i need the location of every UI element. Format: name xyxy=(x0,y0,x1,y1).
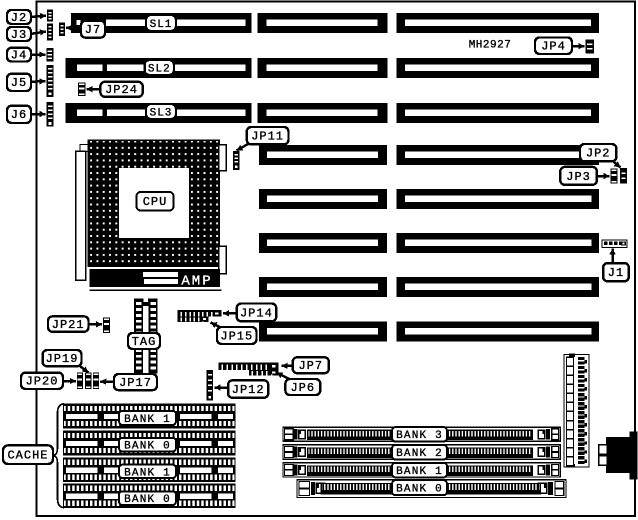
svg-text:J6: J6 xyxy=(11,108,27,122)
svg-text:BANK 1: BANK 1 xyxy=(396,466,443,478)
svg-text:JP7: JP7 xyxy=(298,359,323,373)
svg-text:BANK 1: BANK 1 xyxy=(124,414,171,426)
svg-text:J1: J1 xyxy=(608,266,624,280)
svg-text:JP2: JP2 xyxy=(586,147,611,161)
svg-text:CPU: CPU xyxy=(143,195,168,209)
svg-text:J2: J2 xyxy=(11,11,27,25)
svg-text:JP3: JP3 xyxy=(566,170,591,184)
svg-text:CACHE: CACHE xyxy=(7,449,48,463)
svg-text:J7: J7 xyxy=(85,23,101,37)
svg-text:JP4: JP4 xyxy=(541,40,566,54)
svg-text:JP6: JP6 xyxy=(290,381,315,395)
svg-text:BANK 3: BANK 3 xyxy=(396,430,443,442)
svg-text:JP15: JP15 xyxy=(220,329,253,343)
svg-text:BANK 0: BANK 0 xyxy=(124,494,171,506)
svg-text:SL2: SL2 xyxy=(148,63,171,75)
svg-text:BANK 0: BANK 0 xyxy=(396,484,443,496)
svg-text:JP20: JP20 xyxy=(26,375,59,389)
svg-text:JP11: JP11 xyxy=(251,130,284,144)
svg-text:AMP: AMP xyxy=(181,274,212,290)
svg-text:TAG: TAG xyxy=(132,335,157,349)
svg-text:JP14: JP14 xyxy=(240,306,273,320)
svg-text:J5: J5 xyxy=(11,76,27,90)
svg-text:MH2927: MH2927 xyxy=(469,40,512,52)
svg-text:BANK 0: BANK 0 xyxy=(124,441,171,453)
svg-text:JP19: JP19 xyxy=(46,352,79,366)
svg-text:J4: J4 xyxy=(11,49,27,63)
svg-text:SL1: SL1 xyxy=(150,19,173,31)
svg-text:JP24: JP24 xyxy=(105,83,138,97)
svg-text:BANK 1: BANK 1 xyxy=(124,467,171,479)
svg-text:JP21: JP21 xyxy=(52,318,85,332)
svg-text:BANK 2: BANK 2 xyxy=(396,448,443,460)
svg-text:SL3: SL3 xyxy=(150,107,173,119)
svg-text:JP17: JP17 xyxy=(119,376,152,390)
svg-text:JP12: JP12 xyxy=(232,383,265,397)
svg-text:J3: J3 xyxy=(11,28,27,42)
